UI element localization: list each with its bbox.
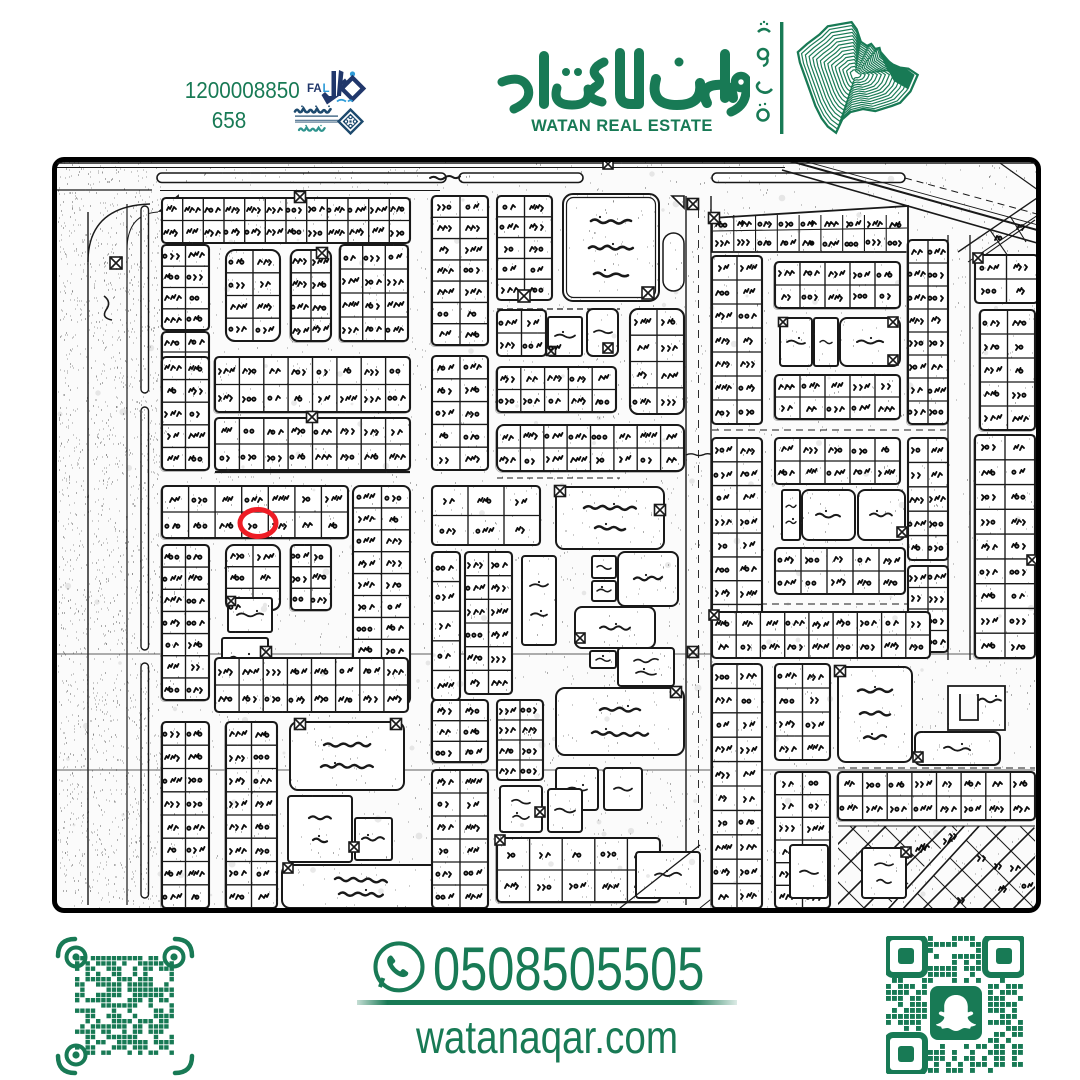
svg-text:FA: FA	[307, 83, 322, 95]
svg-text:L: L	[323, 83, 330, 95]
